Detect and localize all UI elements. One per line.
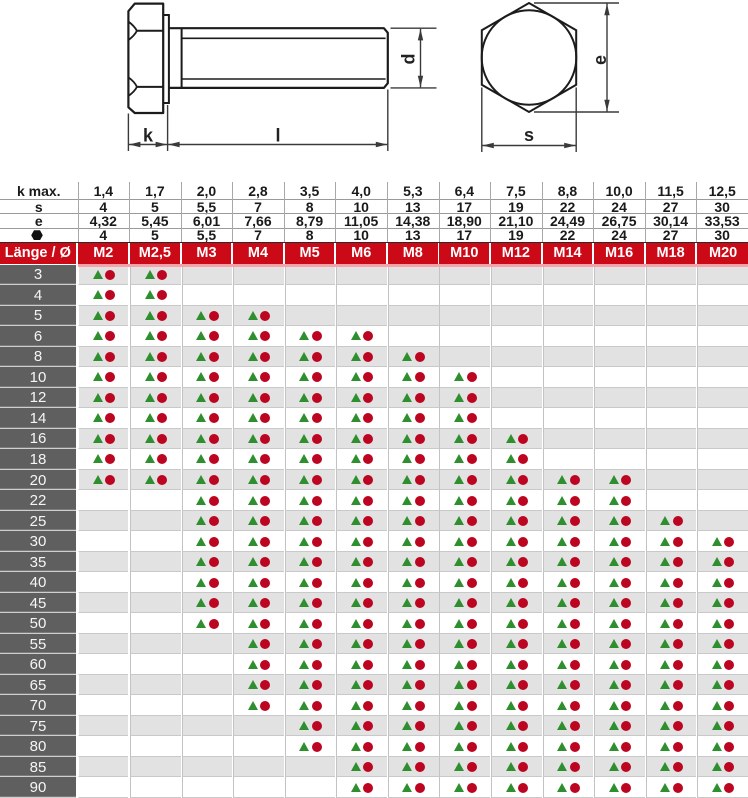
svg-text:e: e bbox=[590, 55, 610, 65]
svg-text:s: s bbox=[524, 125, 534, 145]
svg-text:l: l bbox=[275, 126, 280, 146]
svg-text:k: k bbox=[143, 126, 154, 146]
svg-text:d: d bbox=[399, 54, 419, 65]
